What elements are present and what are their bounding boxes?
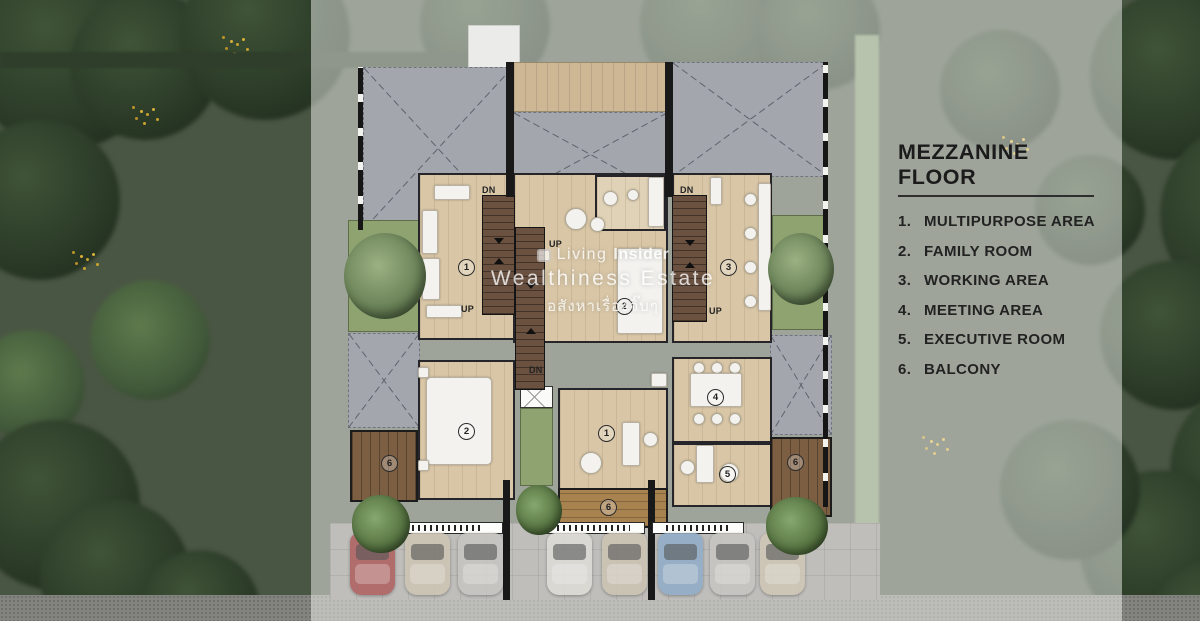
exterior-wall-left xyxy=(358,67,363,230)
car-silver xyxy=(458,533,503,595)
palm-icon xyxy=(90,280,210,400)
floorplan-scene: DN UP UP DN DN UP 1 3 2 2 1 4 5 6 6 6 Li… xyxy=(0,0,1200,621)
side-table xyxy=(418,367,429,378)
carport-divider-wall xyxy=(648,480,655,600)
cabinet xyxy=(710,177,722,205)
car-silver xyxy=(710,533,755,595)
legend-item-label: MEETING AREA xyxy=(924,302,1043,319)
stair-label-dn: DN xyxy=(482,185,496,195)
watermark: Living Insider Wealthiness Estate อสังหา… xyxy=(448,246,758,318)
flowers-icon xyxy=(230,40,233,43)
round-table xyxy=(590,217,605,232)
car-white xyxy=(547,533,592,595)
sink-icon xyxy=(627,189,639,201)
sofa-large xyxy=(426,377,492,465)
watermark-estate-name: Wealthiness Estate xyxy=(448,267,758,291)
watermark-brand: Living Insider xyxy=(448,246,758,264)
courtyard-tree-icon xyxy=(344,233,426,319)
legend-item-label: FAMILY ROOM xyxy=(924,243,1033,260)
planter-bush-icon xyxy=(352,495,410,553)
legend-title: MEZZANINE FLOOR xyxy=(898,140,1094,197)
stair-label-dn: DN xyxy=(680,185,694,195)
meeting-chair xyxy=(729,413,741,425)
area-marker-balcony: 6 xyxy=(600,499,617,516)
party-wall xyxy=(506,62,514,197)
legend-item-label: EXECUTIVE ROOM xyxy=(924,331,1065,348)
legend-item-label: WORKING AREA xyxy=(924,272,1049,289)
legend-item-working-area: 3. WORKING AREA xyxy=(898,272,1128,289)
furniture xyxy=(422,210,438,254)
shower xyxy=(648,177,664,227)
side-table xyxy=(418,460,429,471)
desk-chair xyxy=(680,460,695,475)
legend-item-meeting-area: 4. MEETING AREA xyxy=(898,302,1128,319)
legend-item-number: 6. xyxy=(898,361,924,378)
desk-chair xyxy=(643,432,658,447)
toilet-icon xyxy=(603,191,618,206)
roof-left-lower xyxy=(348,333,420,428)
armchair xyxy=(565,208,587,230)
party-wall xyxy=(665,62,673,197)
courtyard-tree-icon xyxy=(768,233,834,305)
legend-item-label: BALCONY xyxy=(924,361,1001,378)
tree-icon xyxy=(0,120,120,280)
cabinet xyxy=(651,373,667,387)
legend-item-number: 2. xyxy=(898,243,924,260)
watermark-brand-bold: Insider xyxy=(613,246,669,264)
area-marker-balcony: 6 xyxy=(381,455,398,472)
legend-item-number: 1. xyxy=(898,213,924,230)
area-marker-multipurpose: 1 xyxy=(598,425,615,442)
legend-item-executive-room: 5. EXECUTIVE ROOM xyxy=(898,331,1128,348)
area-marker-meeting: 4 xyxy=(707,389,724,406)
stair-label-dn: DN xyxy=(529,365,543,375)
meeting-chair xyxy=(711,413,723,425)
wood-deck-middle-unit xyxy=(513,62,668,112)
car-beige xyxy=(405,533,450,595)
legend-item-family-room: 2. FAMILY ROOM xyxy=(898,243,1128,260)
furniture xyxy=(434,185,470,200)
legend-item-number: 5. xyxy=(898,331,924,348)
area-marker-balcony: 6 xyxy=(787,454,804,471)
desk xyxy=(622,422,640,466)
car-beige xyxy=(602,533,647,595)
planter-bush-icon xyxy=(766,497,828,555)
desk xyxy=(696,445,714,483)
legend-item-number: 3. xyxy=(898,272,924,289)
legend-item-balcony: 6. BALCONY xyxy=(898,361,1128,378)
legend-item-multipurpose-area: 1. MULTIPURPOSE AREA xyxy=(898,213,1128,230)
meeting-chair xyxy=(693,413,705,425)
desk-chair xyxy=(744,227,757,240)
flowers-icon xyxy=(140,110,143,113)
legend-item-label: MULTIPURPOSE AREA xyxy=(924,213,1095,230)
watermark-tagline-thai: อสังหาเรื่องจิ๊บๆ xyxy=(448,294,758,318)
watermark-brand-light: Living xyxy=(557,246,608,264)
living-insider-logo-icon xyxy=(537,249,551,262)
flowers-icon xyxy=(80,255,83,258)
lightwell-middle xyxy=(520,408,553,486)
long-desk xyxy=(758,183,771,311)
pouf xyxy=(580,452,602,474)
legend-panel: MEZZANINE FLOOR 1. MULTIPURPOSE AREA 2. … xyxy=(898,140,1128,390)
area-marker-executive: 5 xyxy=(719,466,736,483)
legend-item-number: 4. xyxy=(898,302,924,319)
area-marker-family: 2 xyxy=(458,423,475,440)
planter-bush-icon xyxy=(516,485,562,535)
carport-divider-wall xyxy=(503,480,510,600)
car-blue xyxy=(658,533,703,595)
desk-chair xyxy=(744,193,757,206)
roof-right-unit xyxy=(672,62,828,177)
